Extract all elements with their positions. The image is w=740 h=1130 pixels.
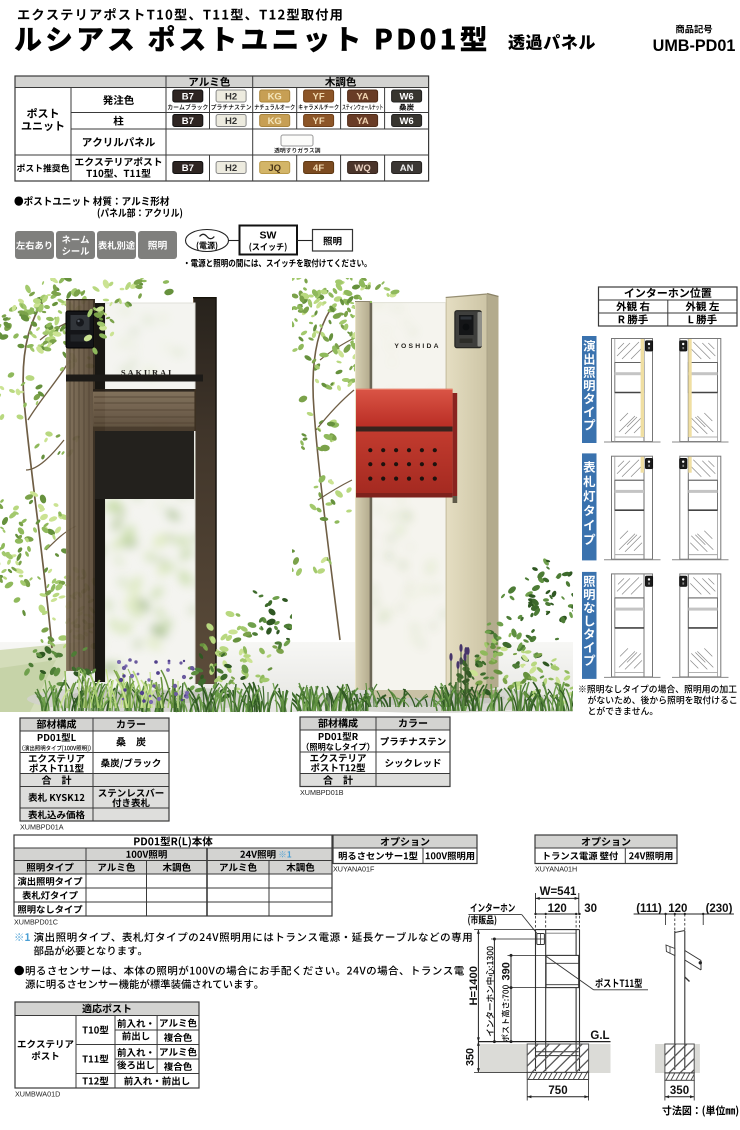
svg-text:W6: W6: [399, 116, 413, 127]
svg-text:KG: KG: [268, 116, 282, 127]
svg-text:W6: W6: [399, 92, 413, 103]
svg-text:4F: 4F: [313, 163, 324, 174]
svg-text:XUYANA01F: XUYANA01F: [333, 865, 375, 874]
svg-text:H2: H2: [225, 116, 237, 127]
svg-text:350: 350: [465, 1048, 477, 1066]
svg-text:350: 350: [670, 1085, 689, 1097]
svg-text:G.L: G.L: [590, 1030, 609, 1042]
svg-text:KG: KG: [268, 92, 282, 103]
svg-text:B7: B7: [182, 116, 194, 127]
svg-text:B7: B7: [182, 163, 194, 174]
svg-text:120: 120: [548, 903, 567, 915]
svg-text:XUMBPD01A: XUMBPD01A: [20, 823, 64, 832]
svg-text:UMB-PD01: UMB-PD01: [653, 37, 736, 55]
svg-text:(111): (111): [636, 903, 662, 915]
svg-text:H=1400: H=1400: [468, 966, 480, 1006]
svg-text:390: 390: [501, 962, 513, 980]
svg-text:XUMBPD01C: XUMBPD01C: [14, 918, 58, 927]
svg-text:YF: YF: [313, 92, 325, 103]
svg-text:YA: YA: [356, 116, 368, 127]
svg-text:H2: H2: [225, 92, 237, 103]
svg-text:(230): (230): [706, 903, 733, 915]
svg-text:YA: YA: [356, 92, 368, 103]
svg-text:SAKURAI: SAKURAI: [121, 367, 173, 377]
svg-text:AN: AN: [400, 163, 414, 174]
svg-text:YF: YF: [313, 116, 325, 127]
svg-text:XUYANA01H: XUYANA01H: [535, 865, 577, 874]
svg-text:B7: B7: [182, 92, 194, 103]
svg-text:30: 30: [584, 903, 597, 915]
svg-text:W=541: W=541: [540, 886, 577, 898]
svg-text:XUMBWA01D: XUMBWA01D: [15, 1090, 60, 1099]
svg-text:YOSHIDA: YOSHIDA: [394, 343, 440, 350]
svg-text:XUMBPD01B: XUMBPD01B: [300, 788, 344, 797]
svg-text:750: 750: [548, 1085, 567, 1097]
svg-text:WQ: WQ: [354, 163, 370, 174]
svg-text:SW: SW: [260, 230, 277, 242]
svg-text:JQ: JQ: [268, 163, 281, 174]
svg-text:H2: H2: [225, 163, 237, 174]
